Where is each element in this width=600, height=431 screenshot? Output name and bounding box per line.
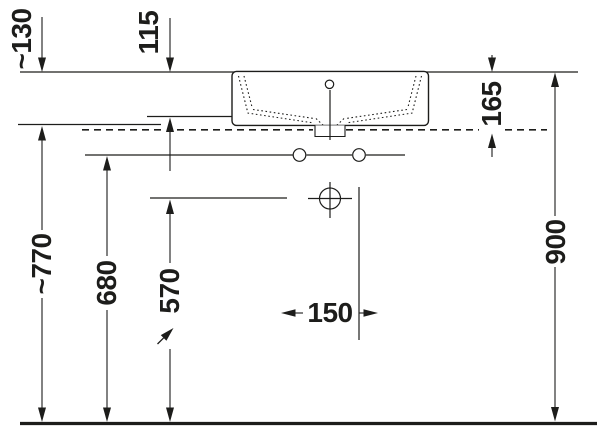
arrow-right-icon: [364, 309, 379, 317]
dim-label-115: 115: [133, 11, 164, 55]
arrow-down-icon: [38, 408, 46, 423]
arrow-up-icon: [38, 126, 46, 141]
technical-drawing-canvas: ~130 ~770 115 570 680 165: [0, 0, 600, 431]
arrow-down-icon: [488, 58, 496, 73]
diagonal-leader-line: [158, 338, 164, 344]
overflow-hole-circle: [325, 80, 333, 88]
dim-label-130: ~130: [6, 8, 37, 69]
arrow-down-icon: [103, 408, 111, 423]
dimension-row-150: 150: [281, 297, 378, 328]
dim-label-680: 680: [91, 260, 122, 305]
dim-label-770: ~770: [26, 233, 57, 294]
dim-label-165: 165: [476, 81, 507, 126]
fixing-hole-right-circle: [353, 149, 366, 162]
dim-label-150: 150: [307, 297, 352, 328]
arrow-down-icon: [551, 407, 559, 422]
dimension-column-680: 680: [91, 156, 122, 422]
arrow-down-icon: [166, 58, 174, 73]
arrow-up-icon: [488, 134, 496, 149]
arrow-up-icon: [103, 156, 111, 171]
arrow-up-icon: [166, 200, 174, 215]
arrow-up-icon: [166, 118, 174, 133]
arrow-left-icon: [281, 309, 296, 317]
washbasin-dimension-drawing: ~130 ~770 115 570 680 165: [0, 0, 600, 431]
dimension-column-900: 900: [540, 73, 571, 422]
dim-label-570: 570: [154, 268, 185, 313]
arrow-down-icon: [38, 58, 46, 73]
dim-label-900: 900: [540, 219, 571, 264]
dimension-column-165: 165: [476, 55, 507, 157]
arrow-up-icon: [551, 73, 559, 88]
fixing-hole-left-circle: [293, 149, 306, 162]
arrow-down-icon: [166, 408, 174, 423]
dimension-column-130-770: ~130 ~770: [6, 8, 57, 422]
